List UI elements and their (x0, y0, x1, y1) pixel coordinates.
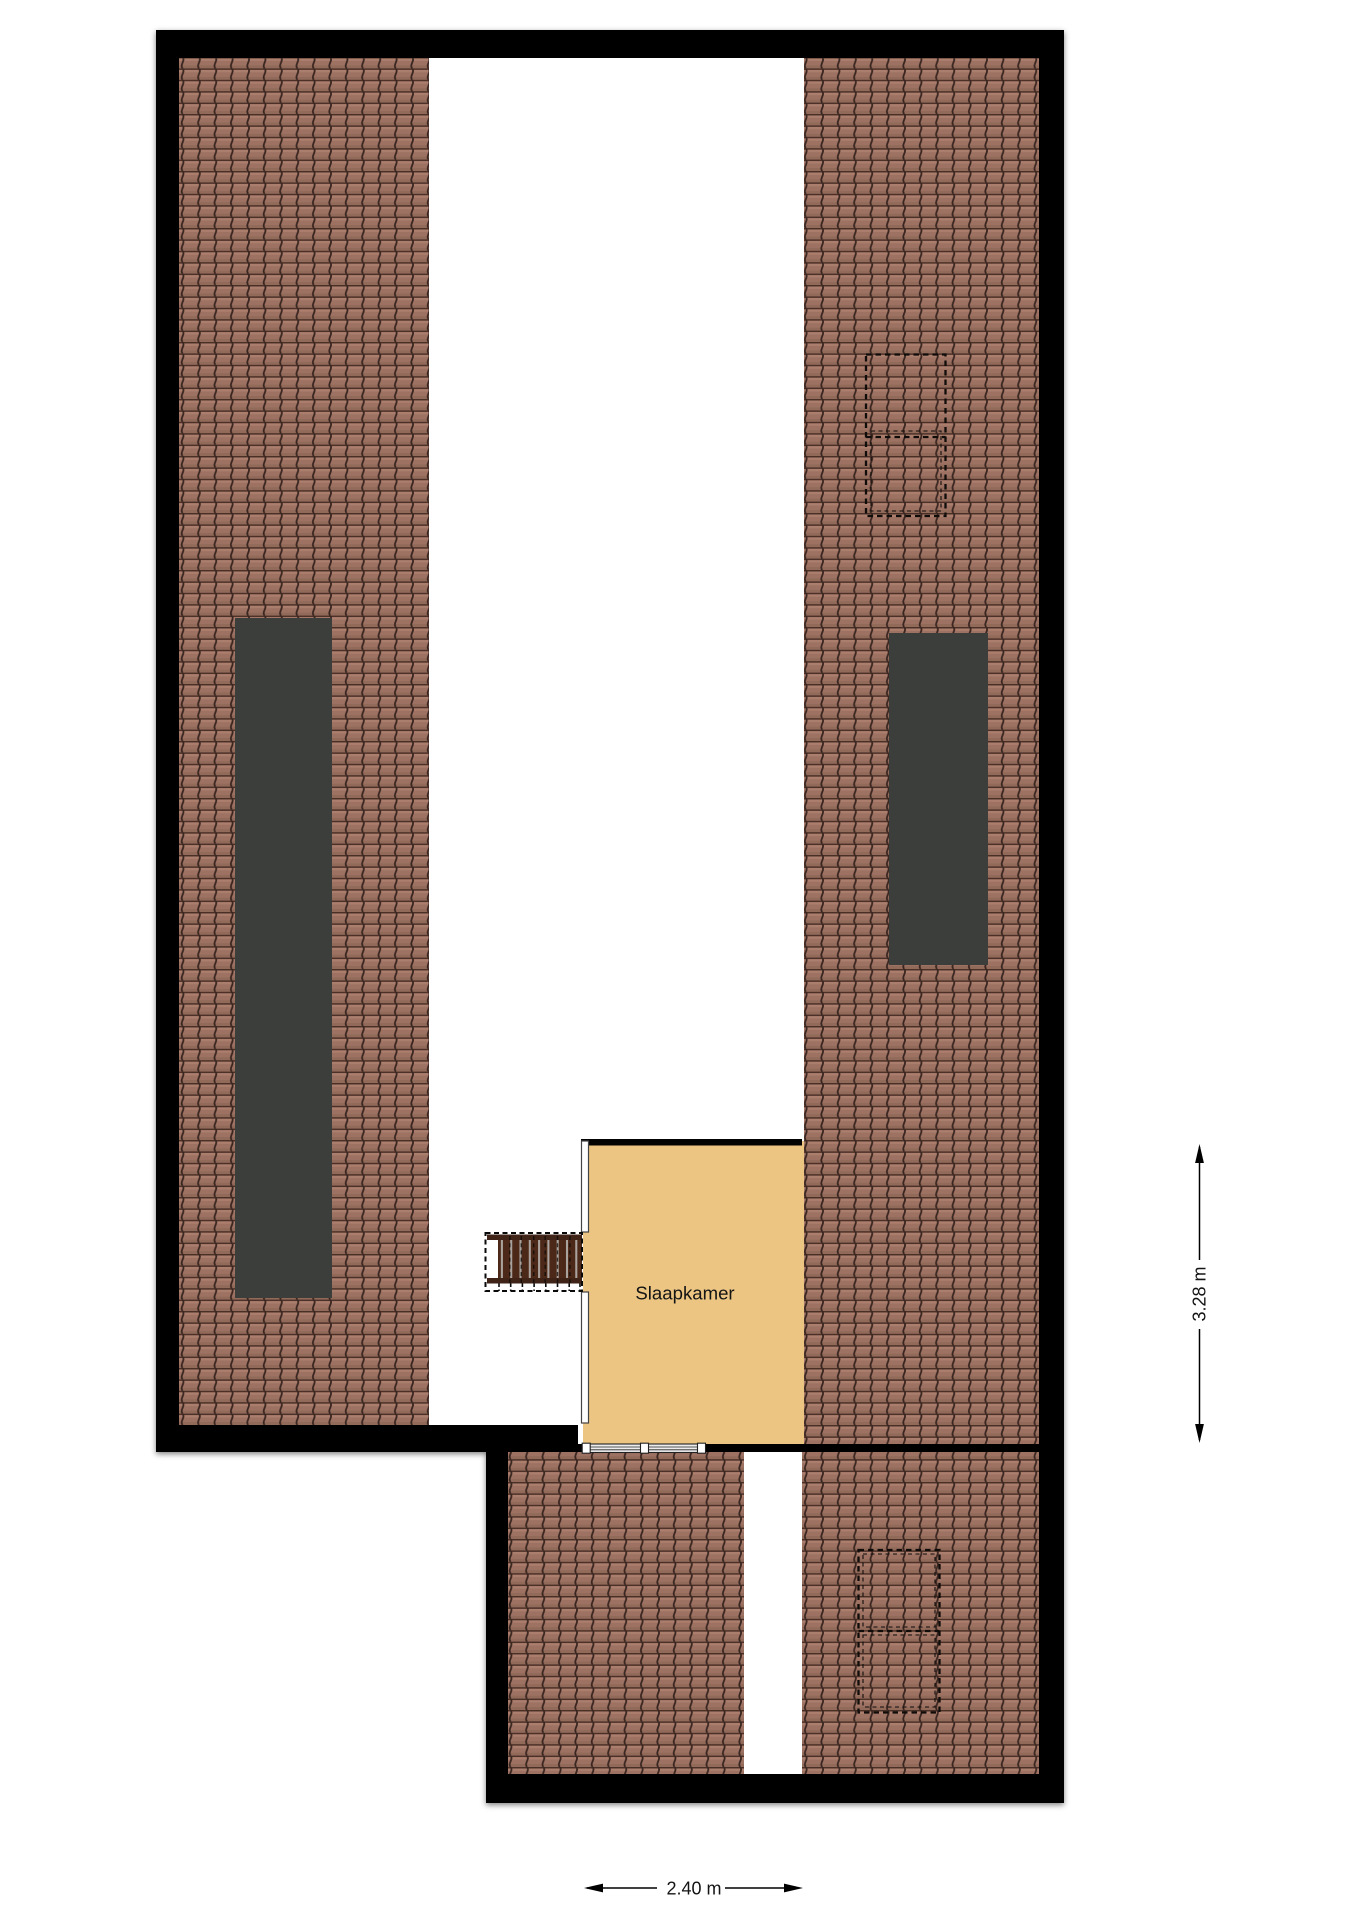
svg-text:Slaapkamer: Slaapkamer (635, 1283, 734, 1304)
svg-text:3.28 m: 3.28 m (1190, 1266, 1210, 1321)
svg-text:2.40 m: 2.40 m (666, 1879, 721, 1899)
